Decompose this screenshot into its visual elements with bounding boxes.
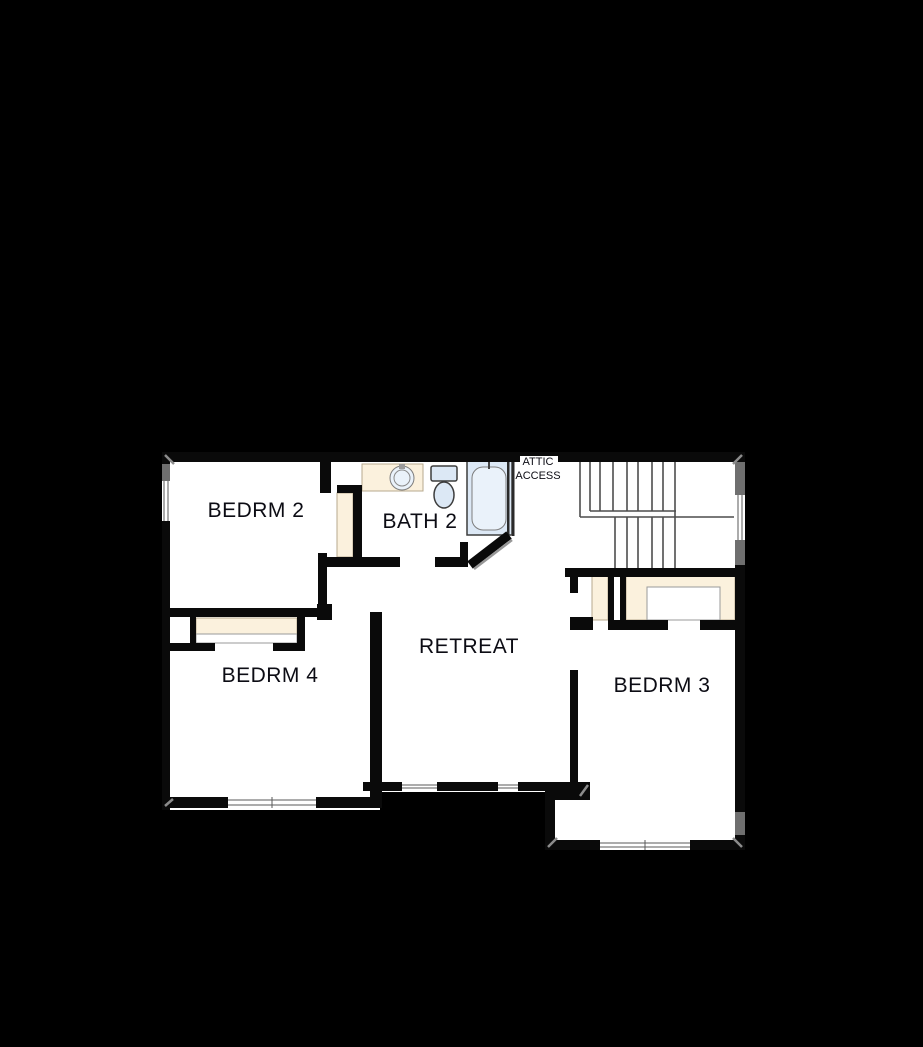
wall-bath-bottom-left [318,557,400,567]
floor-plan: BEDRM 2 BATH 2 BEDRM 4 RETREAT BEDRM 3 A… [0,0,923,1047]
wall-closet-bottom-left [570,617,593,630]
wall-retreat-left [370,612,382,804]
window-retreat-bottom-2 [498,782,518,791]
window-sash [735,812,745,835]
window-bedrm2-left [162,481,170,521]
wall-bath-bottom-right [435,557,468,567]
room-label-bedrm4: BEDRM 4 [222,664,319,687]
wall-divider-cap [317,604,332,620]
wall-bedrm2-closet-right [353,485,362,557]
attic-access-label-line2: ACCESS [515,470,560,482]
room-label-bath2: BATH 2 [383,510,458,533]
bedrm2-closet-fill [337,493,353,557]
window-stairs-right [735,495,745,540]
toilet-bowl-icon [434,482,454,508]
room-label-bedrm3: BEDRM 3 [614,674,711,697]
sink-faucet-icon [399,464,405,469]
wall-closet-top [565,568,738,577]
wall-closet-bottom-right [700,620,738,630]
toilet-tank-icon [431,466,457,481]
linen-closet-fill [592,576,608,620]
window-sash [735,462,745,495]
wall-bedrm3-left-upper [570,670,578,782]
floor-retreat [363,566,578,792]
attic-access-label-line1: ATTIC [523,456,554,468]
wall-retreat-bottom [363,782,590,791]
bathtub-basin-icon [472,467,506,530]
wall-bedrm2-bedrm4-divider [166,608,332,617]
bedrm4-closet-shelf [196,634,297,643]
bedrm4-closet-fill [196,618,297,634]
room-label-bedrm2: BEDRM 2 [208,499,305,522]
wall-bedrm4-closet-right [297,617,305,651]
wall-segment [507,462,510,536]
floor-bedrm3-upper [578,630,735,790]
window-retreat-bottom-1 [402,782,437,791]
window-sash [162,464,170,481]
wall-bath-jamb [460,542,468,558]
wall-closet-bottom-mid [614,620,668,630]
window-sash [735,540,745,565]
wall-bedrm4-closet-jamb [166,643,215,651]
floor-plan-stage: BEDRM 2 BATH 2 BEDRM 4 RETREAT BEDRM 3 A… [0,0,923,1047]
room-label-retreat: RETREAT [419,635,519,658]
wall-closet-divider [608,576,614,630]
wall-exterior-top [162,452,745,462]
wall-bedrm2-door-jamb [320,462,331,493]
wall-segment [512,462,515,536]
bedrm3-closet-rod [647,587,720,620]
wall-closet-left-cap [570,568,578,593]
